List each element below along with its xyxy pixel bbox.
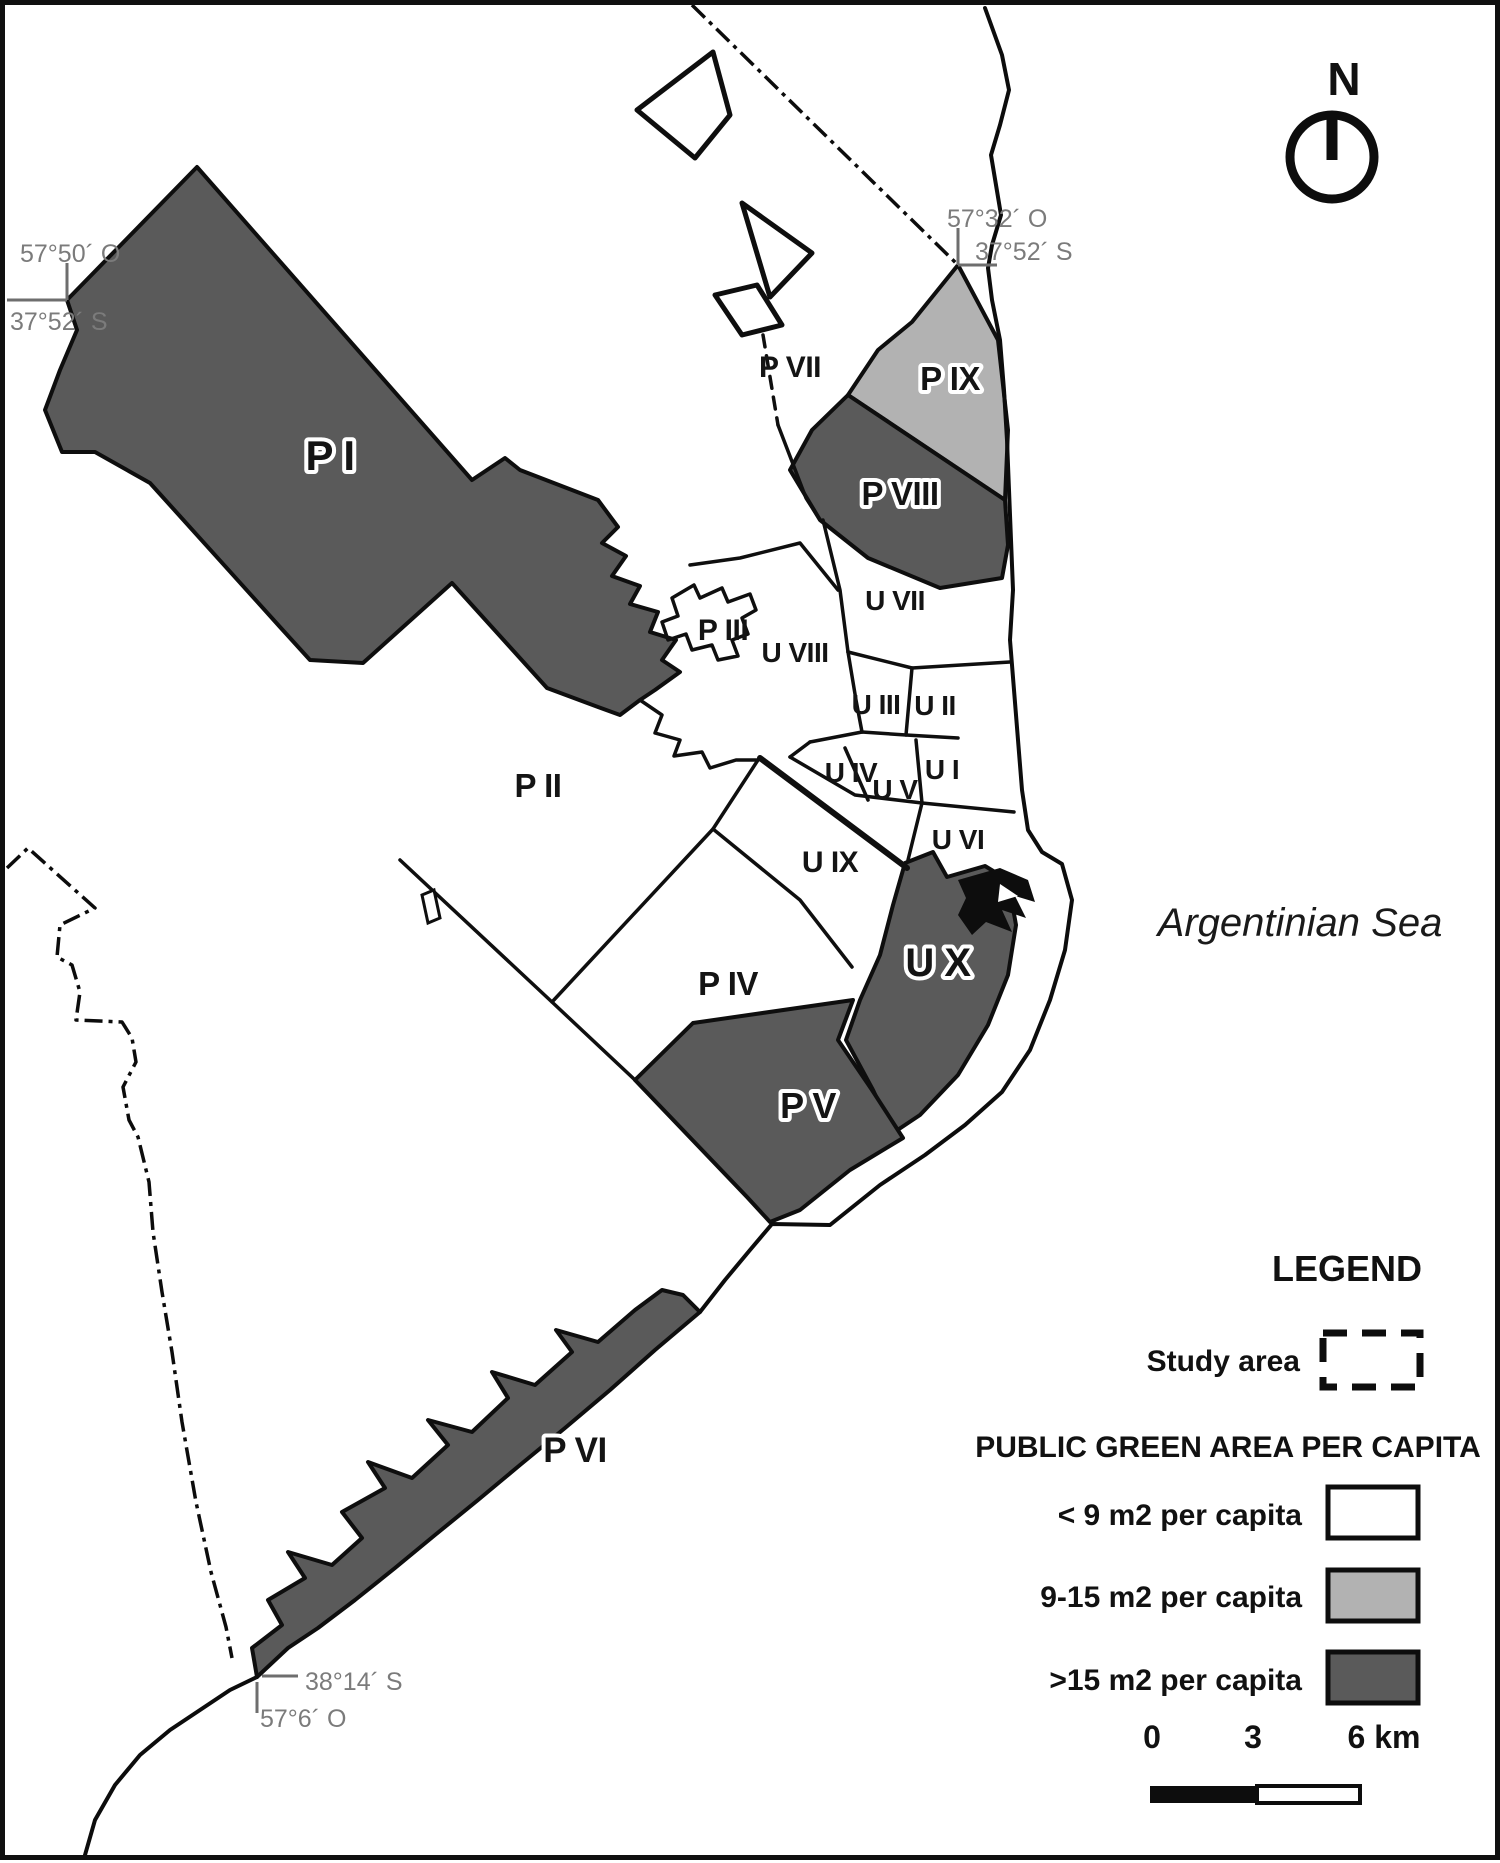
- scale-tick-6: 6 km: [1348, 1719, 1421, 1755]
- region-label-p-vii: P VII: [759, 351, 821, 384]
- legend-section-title: PUBLIC GREEN AREA PER CAPITA: [975, 1431, 1481, 1464]
- island-outline-2: [742, 203, 812, 297]
- tick-top-left: [7, 263, 67, 300]
- legend: LEGEND Study area PUBLIC GREEN AREA PER …: [975, 1248, 1481, 1703]
- region-p-vi: [252, 1290, 700, 1677]
- legend-class-high-label: >15 m2 per capita: [1049, 1664, 1302, 1697]
- region-label-u-iv: U IV: [825, 757, 878, 788]
- north-label: N: [1327, 53, 1360, 105]
- island-outline-1: [637, 52, 730, 158]
- scale-tick-3: 3: [1244, 1719, 1262, 1755]
- scale-bar: 0 3 6 km: [1143, 1719, 1420, 1803]
- map-figure: 57°50´ O 37°52´ S 57°32´ O 37°52´ S 38°1…: [0, 0, 1500, 1863]
- border-u-vii-south: [848, 652, 1010, 668]
- legend-study-area-swatch: [1323, 1333, 1420, 1387]
- region-label-u-v: U V: [872, 774, 918, 805]
- region-label-p-v: P V: [780, 1085, 836, 1126]
- coordinate-top-left-lat: 37°52´ S: [10, 308, 108, 336]
- legend-study-area-label: Study area: [1147, 1345, 1301, 1378]
- legend-class-low-swatch: [1328, 1487, 1418, 1538]
- region-label-p-vi: P VI: [543, 1431, 607, 1470]
- legend-title: LEGEND: [1272, 1248, 1422, 1289]
- scale-tick-0: 0: [1143, 1719, 1161, 1755]
- border-u-viii-north: [690, 543, 838, 590]
- port-breakwater: [958, 868, 1035, 935]
- region-label-u-vii: U VII: [865, 585, 925, 616]
- border-p-ii-east: [640, 700, 758, 768]
- region-label-u-ix: U IX: [802, 846, 859, 879]
- region-label-p-ii: P II: [515, 767, 562, 804]
- north-arrow-icon: N: [1290, 53, 1374, 199]
- region-label-u-i: U I: [925, 754, 959, 785]
- region-label-p-ix: P IX: [920, 360, 980, 397]
- coordinate-bottom-left-lon: 57°6´ O: [260, 1705, 346, 1733]
- study-area-boundary-northeast: [692, 5, 958, 265]
- coordinate-top-right-lon: 57°32´ O: [947, 205, 1047, 233]
- sea-label: Argentinian Sea: [1156, 901, 1443, 945]
- scale-bar-segment-white: [1257, 1786, 1360, 1803]
- coastline-south: [85, 1677, 257, 1855]
- region-label-p-i: P I: [305, 432, 354, 479]
- study-area-boundary-west: [7, 848, 232, 1658]
- map-canvas: 57°50´ O 37°52´ S 57°32´ O 37°52´ S 38°1…: [0, 0, 1500, 1863]
- legend-class-mid-label: 9-15 m2 per capita: [1040, 1581, 1302, 1614]
- legend-class-high-swatch: [1328, 1652, 1418, 1703]
- districts: [45, 167, 1035, 1677]
- border-u-iii-u-ii: [906, 668, 912, 735]
- coordinate-top-right-lat: 37°52´ S: [975, 238, 1073, 266]
- region-label-u-x: U X: [905, 941, 971, 985]
- legend-class-low-label: < 9 m2 per capita: [1058, 1499, 1303, 1532]
- region-label-u-ii: U II: [914, 690, 956, 721]
- scale-bar-segment-black: [1150, 1786, 1257, 1803]
- region-p-i: [45, 167, 680, 715]
- region-label-u-iii: U III: [852, 689, 901, 720]
- coordinate-top-left-lon: 57°50´ O: [20, 240, 120, 268]
- border-u-iv-west: [790, 742, 810, 757]
- coordinate-bottom-left-lat: 38°14´ S: [305, 1668, 403, 1696]
- border-u-vi-top: [922, 803, 1014, 812]
- region-label-u-vi: U VI: [932, 824, 984, 855]
- region-label-p-viii: P VIII: [861, 475, 938, 512]
- region-label-p-iii: P III: [698, 614, 748, 647]
- region-label-p-iv: P IV: [698, 965, 758, 1002]
- legend-class-mid-swatch: [1328, 1570, 1418, 1621]
- border-u-vi-west: [908, 803, 922, 860]
- border-row-u-iv-u-v-u-i: [810, 732, 958, 742]
- region-label-u-viii: U VIII: [761, 637, 828, 668]
